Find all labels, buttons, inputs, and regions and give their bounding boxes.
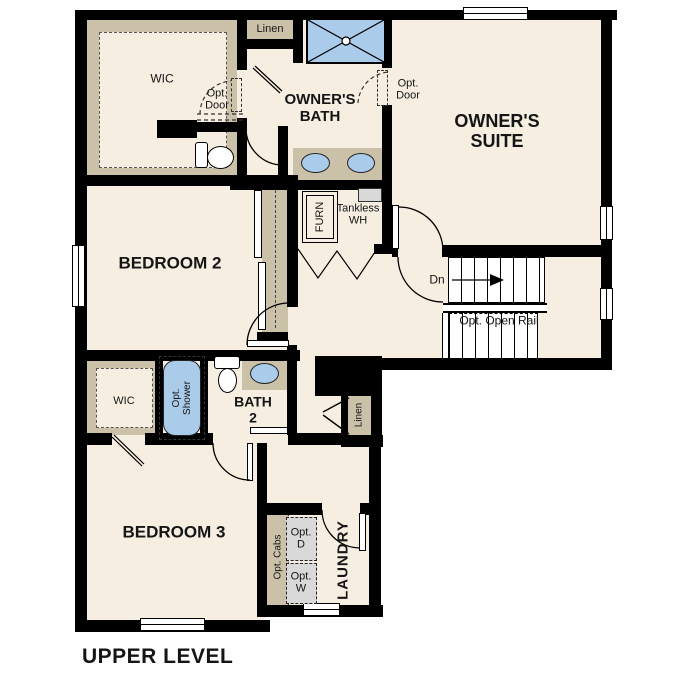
- room-label-bedroom3: BEDROOM 3: [123, 522, 226, 541]
- toilet-tank-owners: [195, 142, 208, 168]
- wall: [369, 437, 381, 617]
- wall: [293, 10, 303, 63]
- window: [140, 618, 205, 631]
- sink-owners-right: [347, 153, 375, 173]
- wall: [247, 39, 297, 49]
- wall: [315, 356, 382, 396]
- label-wic-bed3: WIC: [113, 395, 134, 407]
- window: [463, 7, 528, 20]
- wall: [237, 118, 247, 178]
- door-leaf-laundry: [359, 513, 366, 551]
- stairs-upper-flight: [448, 257, 545, 303]
- label-opt-cabs: Opt. Cabs: [272, 534, 283, 579]
- label-linen-top: Linen: [257, 23, 284, 35]
- wall: [341, 435, 383, 447]
- wall: [374, 244, 392, 254]
- wall: [442, 245, 601, 257]
- label-linen-hall: Linen: [353, 403, 364, 427]
- label-tankless-wh: Tankless WH: [337, 203, 380, 228]
- wall: [287, 345, 297, 435]
- room-label-bedroom2: BEDROOM 2: [119, 253, 222, 272]
- stairs-left-rail: [442, 313, 449, 360]
- stairs-rail: [443, 303, 547, 313]
- wall: [288, 433, 343, 445]
- window: [72, 245, 85, 307]
- chase-box: [358, 188, 382, 202]
- label-wic-owners: WIC: [150, 72, 173, 85]
- shower-owners: [306, 18, 386, 64]
- closet-slider-bedroom2-b: [258, 262, 266, 330]
- wall: [287, 175, 298, 307]
- wall: [382, 105, 392, 248]
- wall: [87, 433, 112, 445]
- label-furnace: FURN: [314, 202, 326, 233]
- label-opt-shower: Opt. Shower: [171, 381, 193, 415]
- sink-owners-left: [301, 153, 330, 173]
- label-opt-dryer: Opt. D: [291, 527, 312, 552]
- window: [600, 206, 613, 240]
- wall: [237, 10, 247, 70]
- wall: [341, 396, 348, 437]
- wall: [382, 358, 612, 370]
- room-label-laundry: LAUNDRY: [336, 520, 353, 600]
- wall: [157, 120, 197, 138]
- wall: [257, 443, 267, 617]
- door-leaf-bath2: [250, 427, 288, 434]
- wall: [75, 10, 87, 632]
- sink-bath2: [250, 363, 279, 384]
- room-label-owners-suite: OWNER'S SUITE: [454, 111, 539, 151]
- label-opt-open-rail: Opt. Open Rail: [459, 314, 538, 327]
- label-opt-door-bath: Opt. Door: [205, 88, 229, 113]
- room-label-owners-bath: OWNER'S BATH: [284, 92, 355, 126]
- wall: [278, 126, 288, 186]
- closet-slider-bedroom2-a: [254, 190, 262, 258]
- opt-door-leaf-wic: [231, 78, 242, 112]
- toilet-bowl-owners: [207, 146, 234, 169]
- wall: [371, 396, 382, 437]
- door-leaf-bedroom3: [247, 443, 253, 481]
- door-leaf-bedroom2: [247, 340, 289, 347]
- toilet-bowl-bath2: [218, 368, 237, 393]
- wall: [267, 503, 322, 515]
- window: [303, 603, 340, 616]
- label-stairs-down: Dn: [429, 273, 444, 286]
- page-title: UPPER LEVEL: [82, 645, 233, 669]
- window: [600, 288, 613, 320]
- label-opt-door-suite: Opt. Door: [396, 78, 420, 103]
- room-label-bath2: BATH 2: [234, 394, 272, 425]
- bedroom2-closet-dashline: [275, 190, 277, 328]
- label-opt-washer: Opt. W: [291, 571, 312, 596]
- floor-plan-upper-level: WIC Linen Opt. Door OWNER'S BATH Opt. Do…: [0, 0, 687, 687]
- opt-door-leaf-suite: [377, 70, 388, 106]
- door-leaf-owners-suite: [392, 205, 399, 249]
